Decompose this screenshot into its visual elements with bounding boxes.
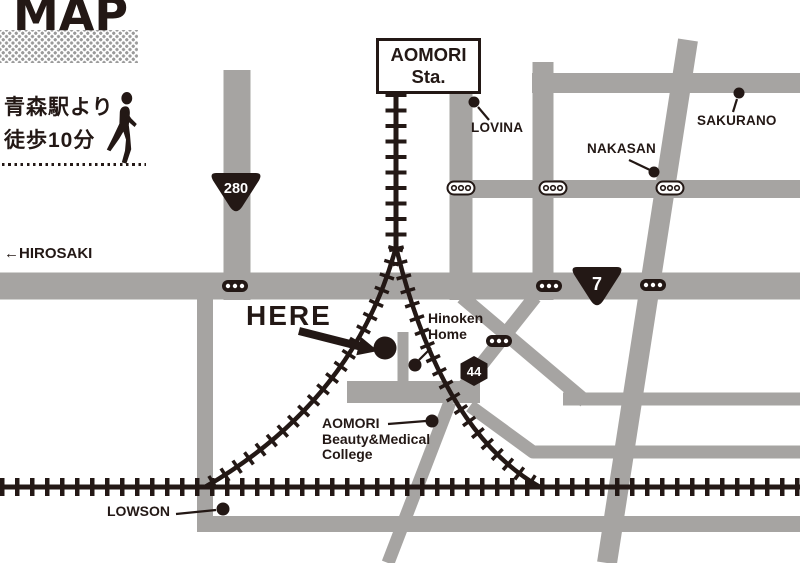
here-dot	[374, 337, 397, 360]
college-line1: AOMORI	[322, 416, 430, 432]
college-line2: Beauty&Medical	[322, 432, 430, 448]
college-label: AOMORI Beauty&Medical College	[322, 416, 430, 463]
access-note-line1: 青森駅より	[4, 97, 114, 118]
college-line3: College	[322, 447, 430, 463]
traffic-light-icon	[657, 182, 684, 195]
traffic-light-icon	[536, 280, 562, 292]
access-map: MAP 青森駅より 徒歩10分 AOMORI Sta. ←HIROSAKI HE…	[0, 0, 800, 563]
pointer-line	[733, 99, 737, 112]
route-7-badge: 7	[573, 275, 621, 293]
walking-person-icon	[104, 92, 146, 166]
place-dot-sakurano	[734, 88, 745, 99]
hinoken-home-label: Hinoken Home	[428, 311, 483, 342]
hinoken-home-line2: Home	[428, 327, 483, 343]
hirosaki-label: ←HIROSAKI	[4, 246, 92, 261]
map-title: MAP	[13, 0, 128, 37]
lowson-label: LOWSON	[107, 504, 170, 518]
traffic-light-icon	[448, 182, 475, 195]
traffic-light-icon	[640, 279, 666, 291]
place-dot-lowson	[217, 503, 230, 516]
hinoken-home-line1: Hinoken	[428, 311, 483, 327]
station-name-line2: Sta.	[412, 66, 446, 88]
access-note-line2: 徒歩10分	[4, 130, 95, 151]
route-280-badge: 280	[212, 182, 260, 197]
traffic-light-icon	[486, 335, 512, 347]
station-box: AOMORI Sta.	[376, 38, 481, 94]
pointer-line	[478, 107, 489, 120]
station-name-line1: AOMORI	[390, 44, 466, 66]
lovina-label: LOVINA	[471, 121, 523, 135]
nakasan-label: NAKASAN	[587, 142, 656, 156]
place-dot-nakasan	[649, 167, 660, 178]
sakurano-label: SAKURANO	[697, 114, 777, 128]
traffic-light-icon	[540, 182, 567, 195]
traffic-light-icon	[222, 280, 248, 292]
dotted-divider	[2, 163, 146, 166]
place-dot-lovina	[469, 97, 480, 108]
here-label: HERE	[246, 302, 332, 330]
route-44-badge: 44	[450, 365, 498, 378]
pointer-line	[629, 160, 650, 170]
